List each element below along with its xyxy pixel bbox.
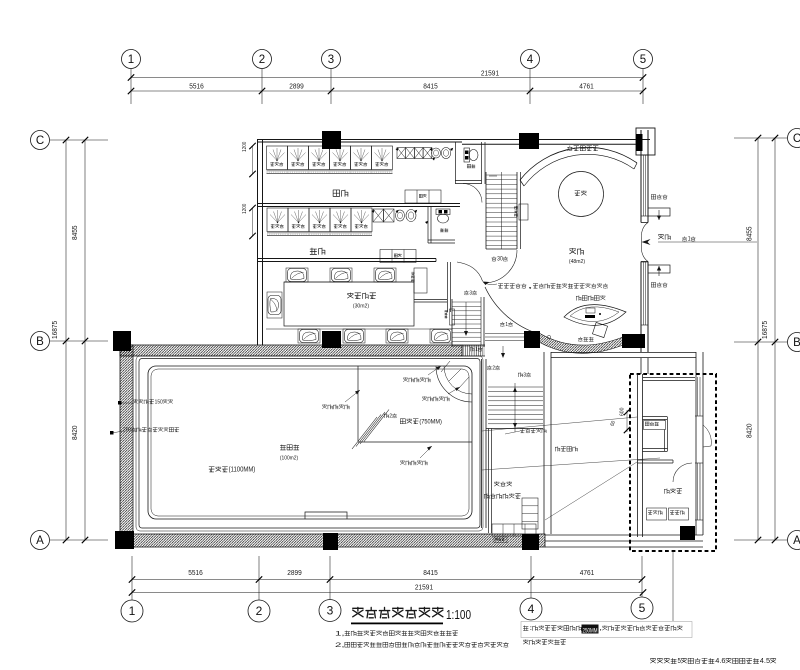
svg-text:A: A [793,535,800,547]
svg-text:2: 2 [492,365,495,371]
svg-text:8415: 8415 [423,568,438,577]
svg-text:1,: 1, [335,630,345,637]
svg-text:C: C [36,135,44,147]
svg-text:8420: 8420 [70,425,79,440]
svg-text:(48m2): (48m2) [569,259,585,265]
svg-text:2: 2 [389,413,392,419]
svg-text:1200: 1200 [242,142,248,152]
svg-text:21591: 21591 [415,583,433,592]
svg-text:1: 1 [475,347,478,353]
svg-text:4: 4 [528,602,535,616]
svg-text:4761: 4761 [579,81,594,90]
svg-text:1200: 1200 [242,204,248,214]
svg-text:16875: 16875 [760,321,769,339]
svg-text::: : [529,625,532,632]
svg-text:5516: 5516 [189,81,204,90]
svg-text:1: 1 [129,604,136,618]
svg-text:C: C [793,133,800,145]
svg-text:3: 3 [328,54,334,66]
svg-text:5: 5 [639,601,646,615]
svg-text:4761: 4761 [580,568,595,577]
svg-text:150: 150 [155,399,163,405]
svg-text:2899: 2899 [287,568,302,577]
svg-text:A: A [36,535,44,547]
svg-text:,: , [599,625,602,632]
svg-text:2: 2 [256,604,263,618]
svg-text:250MM: 250MM [583,627,598,634]
svg-text:(100m2): (100m2) [280,455,298,461]
svg-text:2: 2 [259,54,265,66]
svg-text:3: 3 [469,290,472,296]
svg-text:8415: 8415 [423,81,438,90]
svg-text:(750MM): (750MM) [419,418,442,425]
svg-text:200: 200 [123,427,131,433]
svg-text:3: 3 [523,372,526,378]
svg-text:5: 5 [677,657,680,665]
svg-text:3: 3 [327,604,334,618]
svg-text:8455: 8455 [745,226,754,241]
svg-text:2,: 2, [335,642,345,649]
svg-text:(30m2): (30m2) [353,303,369,309]
svg-text:(1100MM): (1100MM) [229,467,256,474]
svg-text:8420: 8420 [745,423,754,438]
svg-text:1: 1 [128,54,134,66]
svg-text:5516: 5516 [188,568,203,577]
svg-text:B: B [36,336,44,348]
svg-text:1:100: 1:100 [446,608,471,622]
svg-text:30: 30 [497,257,503,263]
svg-text:1: 1 [505,322,508,328]
svg-text:5: 5 [640,54,646,66]
svg-text:B: B [793,337,800,349]
svg-text:2899: 2899 [289,81,304,90]
svg-text:8455: 8455 [70,225,79,240]
svg-text:4: 4 [527,54,534,66]
svg-text:4.6: 4.6 [715,657,725,665]
svg-text:4.5: 4.5 [760,657,770,665]
svg-text:16875: 16875 [50,321,59,339]
svg-text:21591: 21591 [481,69,499,78]
